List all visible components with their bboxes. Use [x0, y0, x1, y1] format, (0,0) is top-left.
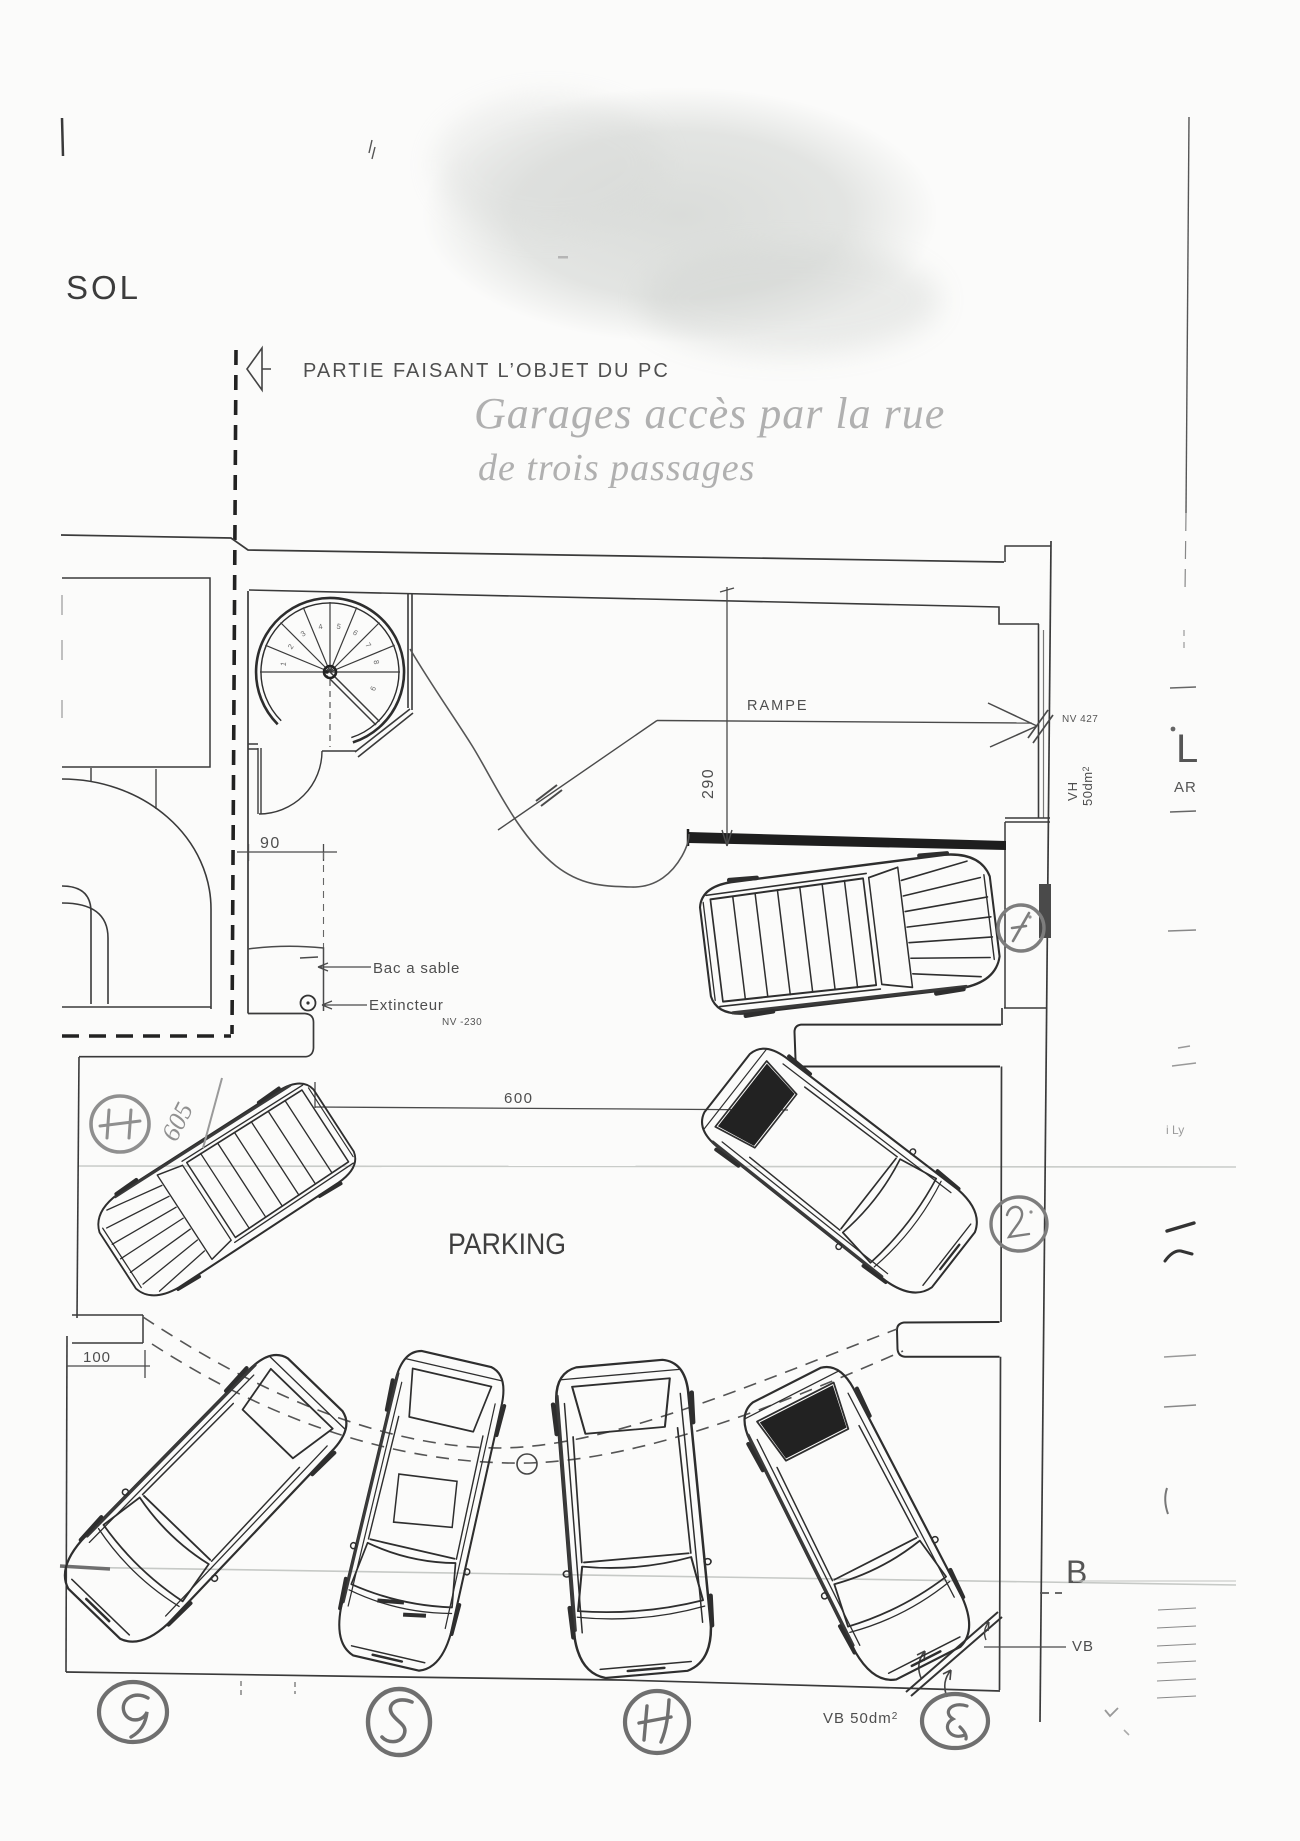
svg-text:NV -230: NV -230 [442, 1017, 482, 1028]
svg-text:4: 4 [317, 622, 323, 632]
svg-text:100: 100 [83, 1349, 111, 1366]
svg-text:Extincteur: Extincteur [369, 997, 444, 1014]
svg-text:Bac a sable: Bac a sable [373, 960, 460, 977]
svg-text:9: 9 [368, 685, 378, 692]
svg-text:PARKING: PARKING [448, 1228, 566, 1261]
svg-text:605: 605 [156, 1098, 200, 1146]
svg-text:50dm2: 50dm2 [1080, 766, 1095, 806]
svg-text:RAMPE: RAMPE [747, 698, 809, 714]
svg-text:VH: VH [1065, 781, 1080, 801]
svg-text:L: L [1176, 727, 1198, 771]
svg-text:VB 50dm2: VB 50dm2 [823, 1710, 898, 1727]
svg-text:VB: VB [1072, 1638, 1094, 1655]
svg-text:B: B [1066, 1554, 1087, 1590]
svg-text:de trois passages: de trois passages [478, 447, 755, 489]
svg-text:NV 427: NV 427 [1062, 714, 1098, 725]
svg-text:90: 90 [260, 835, 281, 852]
svg-text:290: 290 [700, 768, 717, 799]
svg-text:8: 8 [372, 659, 382, 665]
svg-text:3: 3 [299, 629, 307, 639]
svg-text:6: 6 [351, 628, 359, 638]
svg-text:2: 2 [286, 642, 296, 650]
svg-text:i Ly: i Ly [1166, 1123, 1184, 1137]
svg-text:AR: AR [1174, 779, 1197, 796]
svg-text:600: 600 [504, 1090, 534, 1107]
svg-text:SOL: SOL [66, 269, 141, 306]
svg-text:5: 5 [336, 622, 342, 632]
svg-text:Garages accès par la rue: Garages accès par la rue [474, 389, 945, 438]
svg-text:7: 7 [363, 641, 373, 649]
svg-text:1: 1 [279, 661, 289, 667]
svg-text:PARTIE FAISANT L’OBJET DU PC: PARTIE FAISANT L’OBJET DU PC [303, 360, 670, 382]
